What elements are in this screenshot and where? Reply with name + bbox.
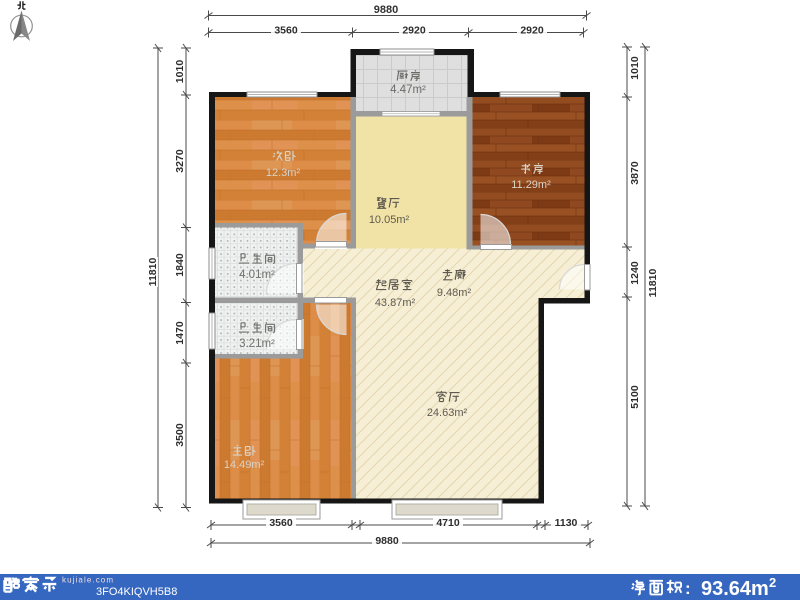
- svg-text:43.87m²: 43.87m²: [375, 297, 416, 309]
- svg-text:5100: 5100: [629, 385, 641, 409]
- svg-text:3560: 3560: [274, 25, 298, 37]
- svg-text:kujiale.com: kujiale.com: [62, 576, 114, 585]
- svg-text:3FO4KIQVH5B8: 3FO4KIQVH5B8: [96, 586, 177, 598]
- svg-text:2: 2: [769, 575, 776, 590]
- svg-text:14.49m²: 14.49m²: [224, 459, 265, 471]
- svg-text:1470: 1470: [174, 321, 186, 345]
- svg-text:3500: 3500: [174, 423, 186, 447]
- svg-text:2920: 2920: [402, 25, 426, 37]
- svg-text:1840: 1840: [174, 253, 186, 277]
- svg-text:24.63m²: 24.63m²: [427, 407, 468, 419]
- svg-text:1130: 1130: [555, 517, 578, 529]
- svg-text:9880: 9880: [374, 4, 398, 16]
- svg-text::: :: [685, 579, 691, 598]
- svg-text:9880: 9880: [375, 535, 399, 547]
- svg-text:11810: 11810: [147, 258, 159, 287]
- svg-text:2920: 2920: [520, 25, 544, 37]
- svg-text:3870: 3870: [629, 161, 641, 185]
- svg-text:9.48m²: 9.48m²: [437, 287, 472, 299]
- svg-text:4710: 4710: [436, 517, 460, 529]
- svg-text:1240: 1240: [629, 261, 641, 285]
- svg-text:11810: 11810: [647, 269, 659, 298]
- svg-text:1010: 1010: [629, 56, 641, 80]
- svg-text:10.05m²: 10.05m²: [369, 214, 410, 226]
- svg-text:11.29m²: 11.29m²: [511, 179, 551, 191]
- svg-text:1010: 1010: [174, 60, 186, 84]
- svg-text:93.64m: 93.64m: [701, 578, 769, 600]
- svg-text:3270: 3270: [174, 149, 186, 173]
- svg-text:3560: 3560: [269, 517, 293, 529]
- svg-text:4.01m²: 4.01m²: [239, 269, 275, 281]
- svg-text:3.21m²: 3.21m²: [239, 338, 275, 350]
- svg-text:12.3m²: 12.3m²: [266, 167, 301, 179]
- svg-text:4.47m²: 4.47m²: [390, 84, 426, 96]
